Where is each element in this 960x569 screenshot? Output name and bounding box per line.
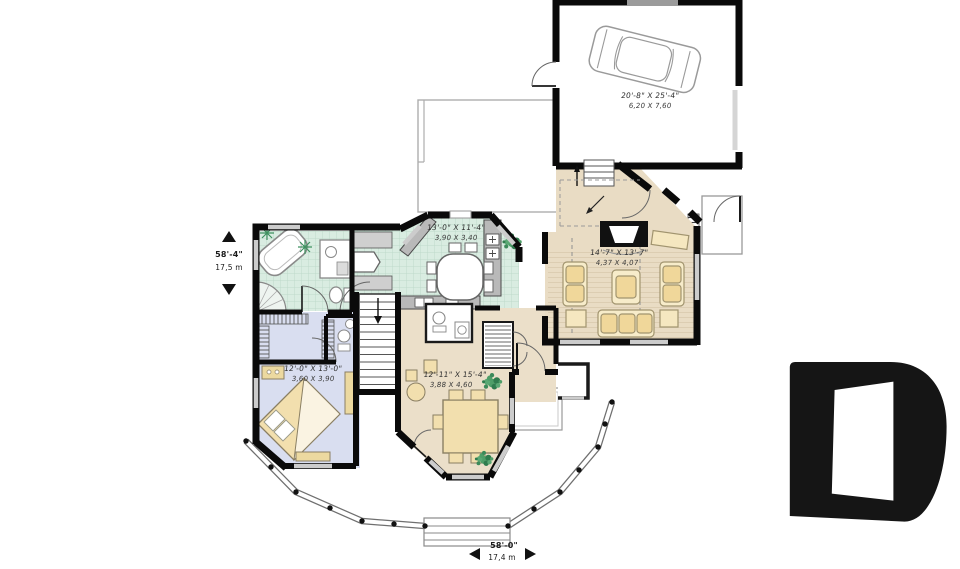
dresser	[262, 366, 284, 379]
floor-plan-canvas: 20'-8" X 25'-4" 6,20 X 7,60 13'-0" X 11'…	[0, 0, 960, 569]
overall-depth-imperial: 58'-4"	[215, 250, 243, 259]
powder-toilet	[338, 330, 350, 342]
width-arrow-right	[525, 548, 536, 560]
sink	[326, 247, 337, 258]
garage-dim-imperial: 20'-8" X 25'-4"	[620, 92, 679, 100]
pantry-cabinet	[354, 276, 392, 290]
patio-door	[450, 211, 471, 218]
dining-room-dim-imperial: 12'-11" X 15'-4"	[423, 371, 487, 379]
overall-width-metric: 17,4 m	[488, 553, 516, 562]
dining-room-dim-metric: 3,88 X 4,60	[429, 382, 473, 389]
refrigerator	[354, 252, 380, 272]
dining-table	[443, 400, 498, 453]
window-nook	[558, 364, 588, 398]
depth-arrow-down	[222, 284, 236, 295]
bedroom-dim-metric: 3,60 X 3,90	[291, 376, 335, 383]
depth-arrow-up	[222, 231, 236, 242]
kitchen-dim-imperial: 13'-0" X 11'-4"	[426, 224, 485, 232]
family-room-dim-metric: 4,37 X 4,07	[595, 260, 639, 267]
side-table	[407, 383, 425, 401]
toilet	[330, 287, 343, 303]
overall-depth-metric: 17,5 m	[215, 263, 243, 272]
overall-width-imperial: 58'-0"	[490, 541, 518, 550]
half-bath	[426, 304, 472, 342]
drummond-logo-watermark	[790, 362, 947, 522]
family-room-dim-imperial: 14'-7" X 13'-7"	[589, 249, 648, 257]
pantry-cabinet	[354, 232, 392, 248]
window-bench	[296, 452, 330, 461]
rear-deck-outline	[418, 100, 558, 212]
floor-plan-drawing	[0, 0, 960, 569]
car	[587, 24, 703, 95]
width-arrow-left	[469, 548, 480, 560]
garage-side-door	[532, 62, 556, 86]
staircase	[359, 294, 397, 392]
garage-door-band	[627, 0, 678, 6]
bedroom-dim-imperial: 12'-0" X 13'-0"	[283, 365, 342, 373]
garage-dim-metric: 6,20 X 7,60	[628, 103, 672, 110]
side-chair	[406, 370, 417, 381]
kitchen-dim-metric: 3,90 X 3,40	[434, 235, 478, 242]
